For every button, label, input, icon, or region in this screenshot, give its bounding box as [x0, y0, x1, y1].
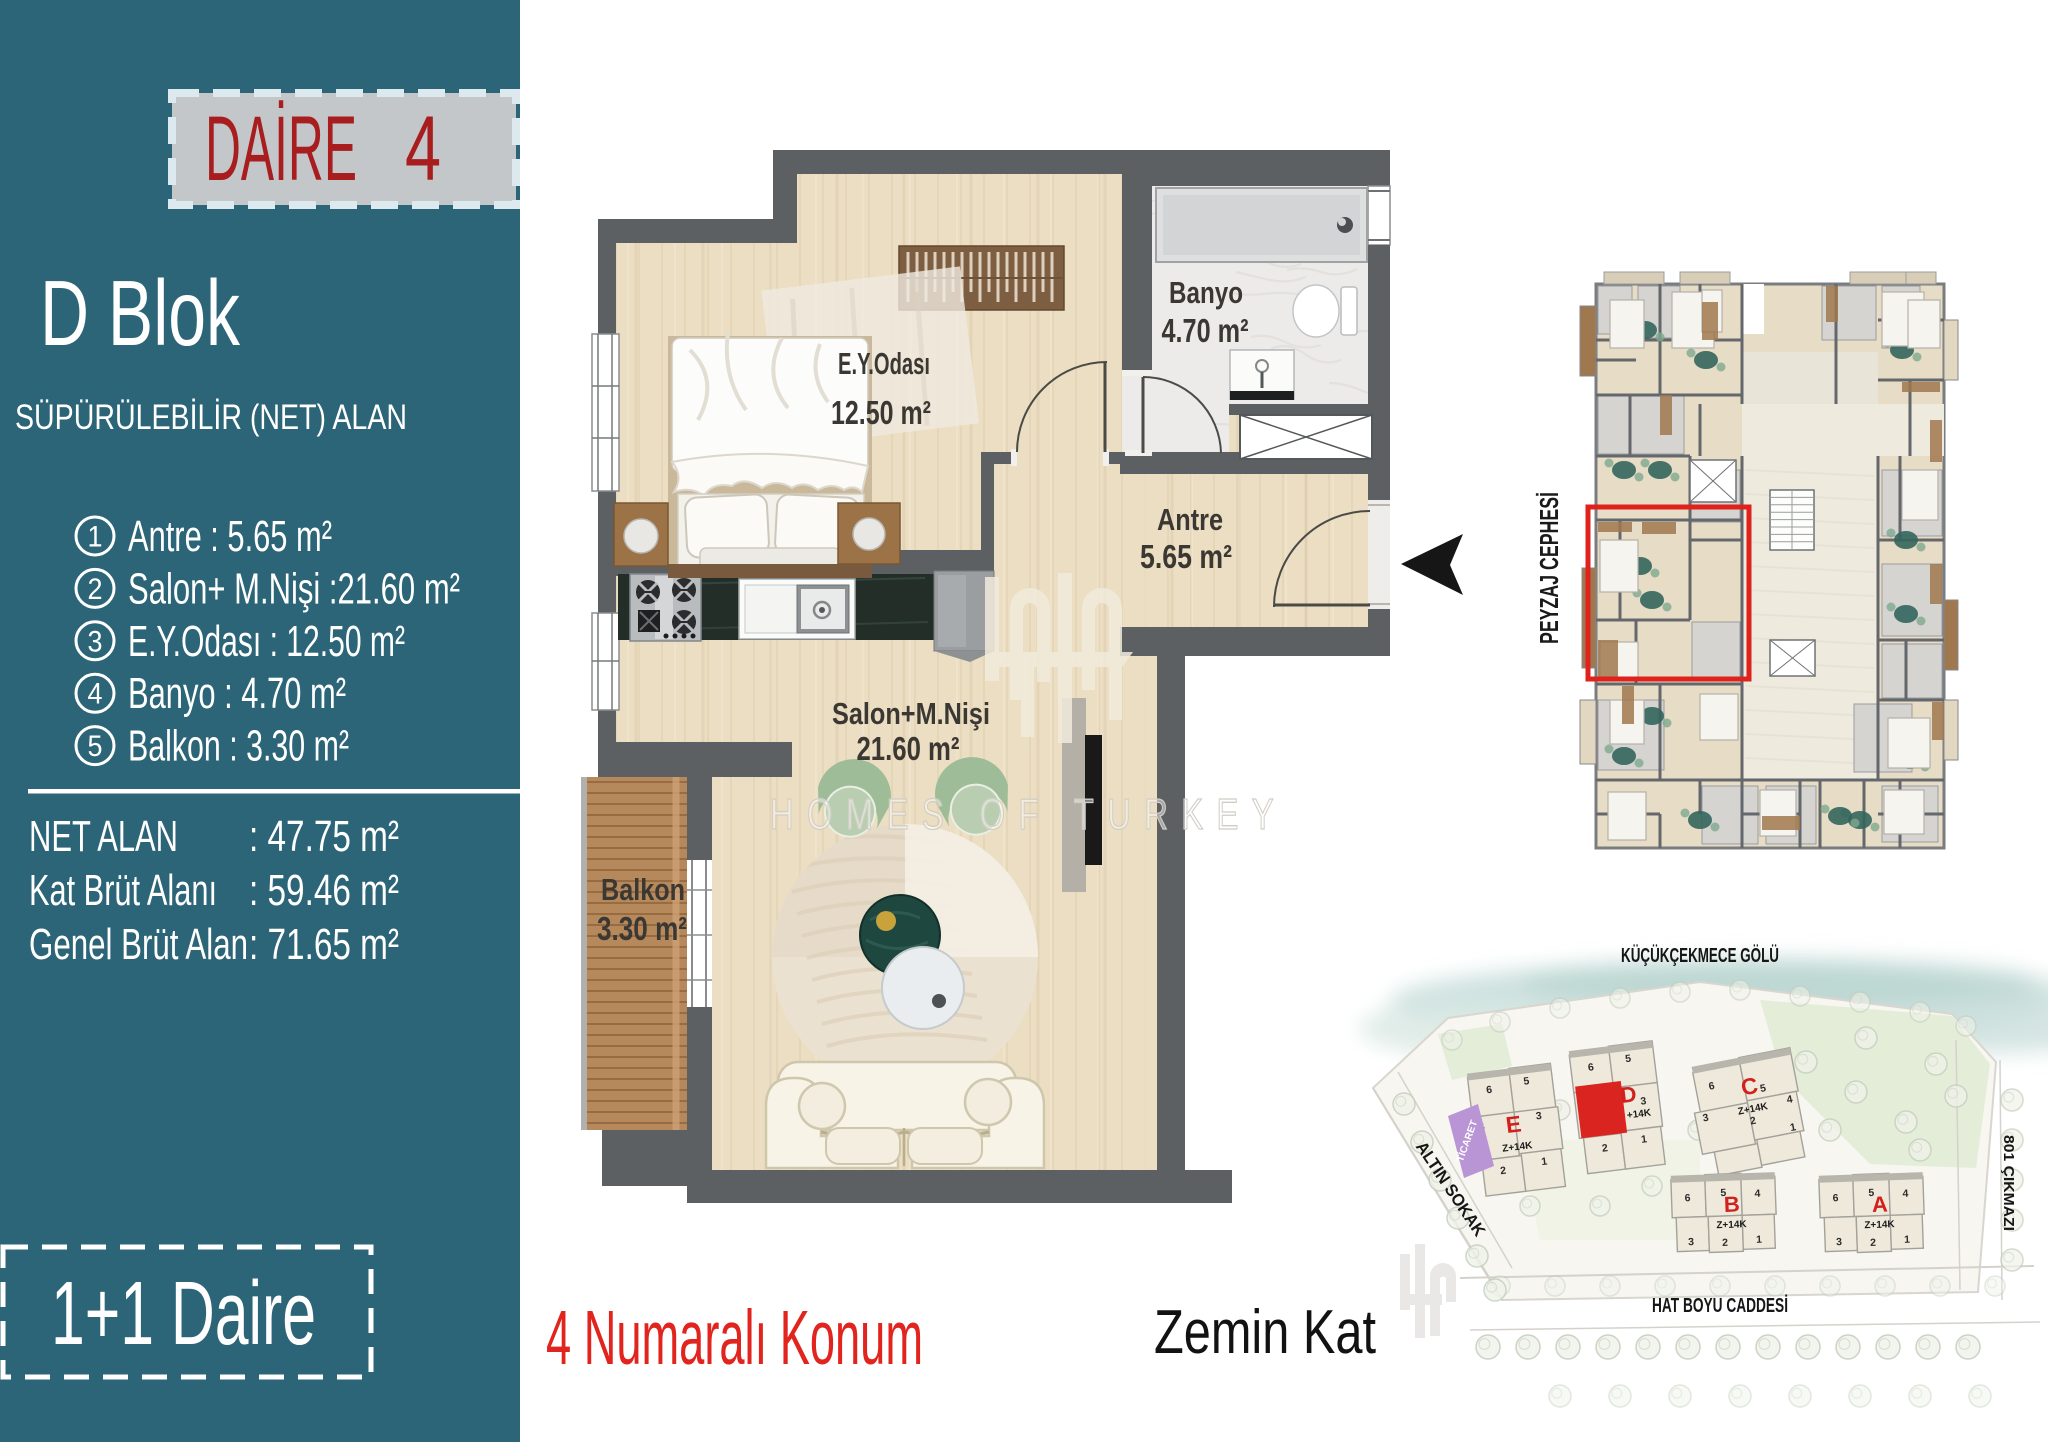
svg-text:DAİRE: DAİRE [205, 98, 357, 200]
svg-text:SÜPÜRÜLEBİLİR (NET) ALAN: SÜPÜRÜLEBİLİR (NET) ALAN [15, 398, 407, 437]
svg-text:E: E [1504, 1110, 1522, 1138]
svg-text:6: 6 [1832, 1192, 1838, 1204]
svg-text:Banyo: Banyo [1169, 275, 1243, 310]
svg-text:Genel Brüt Alan: Genel Brüt Alan [29, 920, 248, 969]
svg-text:4: 4 [1902, 1188, 1908, 1200]
svg-text:: 71.65 m²: : 71.65 m² [249, 920, 399, 969]
svg-text:Z+14K: Z+14K [1864, 1219, 1895, 1231]
svg-text:: 59.46 m²: : 59.46 m² [249, 866, 399, 915]
svg-text:21.60 m²: 21.60 m² [857, 730, 960, 767]
svg-text:4: 4 [1754, 1188, 1760, 1200]
svg-text:12.50 m²: 12.50 m² [831, 394, 931, 431]
svg-text:6: 6 [1684, 1192, 1690, 1204]
svg-text:801 ÇIKMAZI: 801 ÇIKMAZI [2000, 1135, 2017, 1231]
svg-text:Zemin Kat: Zemin Kat [1154, 1298, 1376, 1367]
svg-text:Balkon : 3.30 m²: Balkon : 3.30 m² [128, 722, 349, 771]
svg-text:1+1 Daire: 1+1 Daire [51, 1264, 316, 1364]
svg-text:3: 3 [1688, 1236, 1694, 1248]
svg-text:4.70 m²: 4.70 m² [1162, 312, 1249, 349]
svg-text:KÜÇÜKÇEKMECE GÖLÜ: KÜÇÜKÇEKMECE GÖLÜ [1621, 944, 1779, 967]
svg-text:HAT BOYU CADDESİ: HAT BOYU CADDESİ [1652, 1294, 1788, 1317]
svg-text:: 47.75 m²: : 47.75 m² [249, 812, 399, 861]
svg-text:Banyo : 4.70 m²: Banyo : 4.70 m² [128, 669, 346, 718]
svg-text:2: 2 [88, 573, 103, 606]
svg-text:B: B [1723, 1191, 1740, 1217]
svg-text:4: 4 [405, 98, 441, 200]
svg-text:3: 3 [88, 625, 103, 658]
svg-text:3.30 m²: 3.30 m² [597, 910, 687, 947]
svg-text:E.Y.Odası: E.Y.Odası [838, 346, 930, 381]
svg-text:Salon+ M.Nişi :21.60 m²: Salon+ M.Nişi :21.60 m² [128, 564, 460, 613]
svg-text:E.Y.Odası : 12.50 m²: E.Y.Odası : 12.50 m² [128, 617, 405, 666]
svg-text:5.65 m²: 5.65 m² [1140, 538, 1232, 575]
svg-text:4 Numaralı Konum: 4 Numaralı Konum [546, 1295, 923, 1381]
svg-text:1: 1 [1904, 1234, 1910, 1246]
svg-text:4: 4 [88, 678, 103, 711]
svg-text:Z+14K: Z+14K [1716, 1219, 1747, 1231]
svg-text:1: 1 [1756, 1234, 1762, 1246]
svg-text:NET ALAN: NET ALAN [29, 812, 178, 861]
svg-text:Kat Brüt Alanı: Kat Brüt Alanı [29, 866, 217, 915]
svg-text:A: A [1871, 1191, 1888, 1217]
svg-text:D: D [1619, 1081, 1638, 1108]
svg-text:D Blok: D Blok [40, 261, 240, 365]
svg-text:5: 5 [88, 730, 103, 763]
svg-text:Salon+M.Nişi: Salon+M.Nişi [832, 696, 990, 731]
svg-text:1: 1 [88, 521, 103, 554]
svg-text:HOMES OF TURKEY: HOMES OF TURKEY [770, 790, 1287, 839]
svg-text:2: 2 [1870, 1237, 1876, 1249]
svg-text:PEYZAJ CEPHESİ: PEYZAJ CEPHESİ [1534, 492, 1564, 644]
svg-text:Balkon: Balkon [601, 872, 685, 907]
svg-text:Antre : 5.65 m²: Antre : 5.65 m² [128, 512, 332, 561]
svg-text:2: 2 [1722, 1237, 1728, 1249]
svg-text:Antre: Antre [1157, 502, 1223, 537]
svg-text:3: 3 [1836, 1236, 1842, 1248]
